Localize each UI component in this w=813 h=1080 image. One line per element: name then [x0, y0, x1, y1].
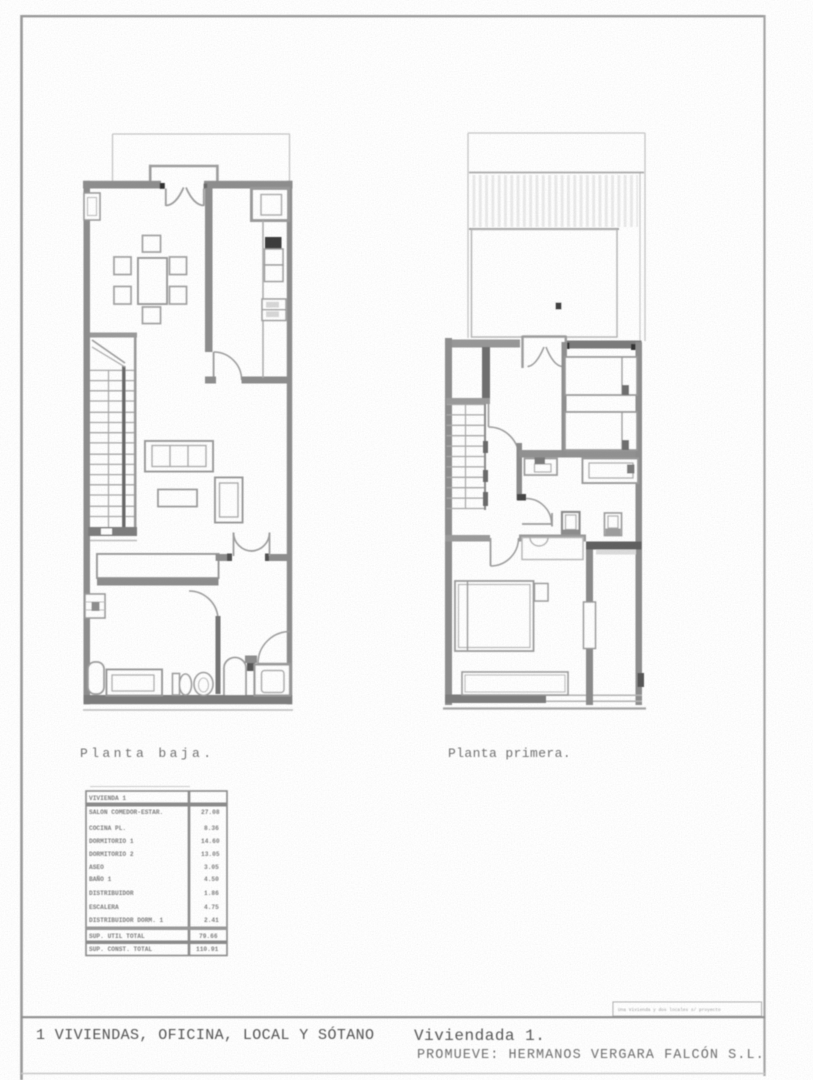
- svg-text:1 VIVIENDAS, OFICINA, LOCAL Y: 1 VIVIENDAS, OFICINA, LOCAL Y SÓTANO: [36, 1026, 374, 1044]
- svg-text:BAÑO 1: BAÑO 1: [89, 876, 112, 883]
- svg-text:ASEO: ASEO: [89, 864, 104, 871]
- svg-text:79.66: 79.66: [199, 933, 218, 940]
- svg-text:ESCALERA: ESCALERA: [89, 904, 119, 911]
- svg-text:4.50: 4.50: [204, 876, 219, 883]
- svg-text:DORMITORIO 1: DORMITORIO 1: [89, 838, 134, 845]
- svg-text:Una Vivienda y dos locales s/: Una Vivienda y dos locales s/ proyecto: [618, 1007, 721, 1013]
- svg-text:1.86: 1.86: [204, 890, 219, 897]
- svg-text:DISTRIBUIDOR DORM. 1: DISTRIBUIDOR DORM. 1: [89, 917, 164, 924]
- svg-text:Planta baja.: Planta baja.: [80, 746, 214, 761]
- svg-text:SUP. CONST. TOTAL: SUP. CONST. TOTAL: [89, 946, 152, 953]
- svg-text:PROMUEVE: HERMANOS VERGARA FAL: PROMUEVE: HERMANOS VERGARA FALCÓN S.L.: [417, 1047, 765, 1063]
- svg-text:14.60: 14.60: [201, 838, 220, 845]
- svg-text:SALON COMEDOR-ESTAR.: SALON COMEDOR-ESTAR.: [89, 809, 163, 816]
- svg-text:Viviendada 1.: Viviendada 1.: [414, 1027, 545, 1045]
- svg-text:110.91: 110.91: [196, 946, 219, 953]
- svg-text:27.08: 27.08: [201, 809, 220, 816]
- svg-text:DISTRIBUIDOR: DISTRIBUIDOR: [89, 890, 134, 897]
- svg-text:COCINA PL.: COCINA PL.: [89, 825, 126, 832]
- svg-text:3.05: 3.05: [204, 864, 219, 871]
- svg-text:8.36: 8.36: [204, 825, 219, 832]
- svg-text:Planta primera.: Planta primera.: [448, 746, 571, 761]
- svg-text:2.41: 2.41: [204, 917, 219, 924]
- svg-text:VIVIENDA 1: VIVIENDA 1: [89, 795, 126, 802]
- svg-text:SUP. UTIL TOTAL: SUP. UTIL TOTAL: [89, 933, 145, 940]
- svg-text:DORMITORIO 2: DORMITORIO 2: [89, 851, 134, 858]
- svg-text:4.75: 4.75: [204, 904, 219, 911]
- svg-text:13.05: 13.05: [201, 851, 220, 858]
